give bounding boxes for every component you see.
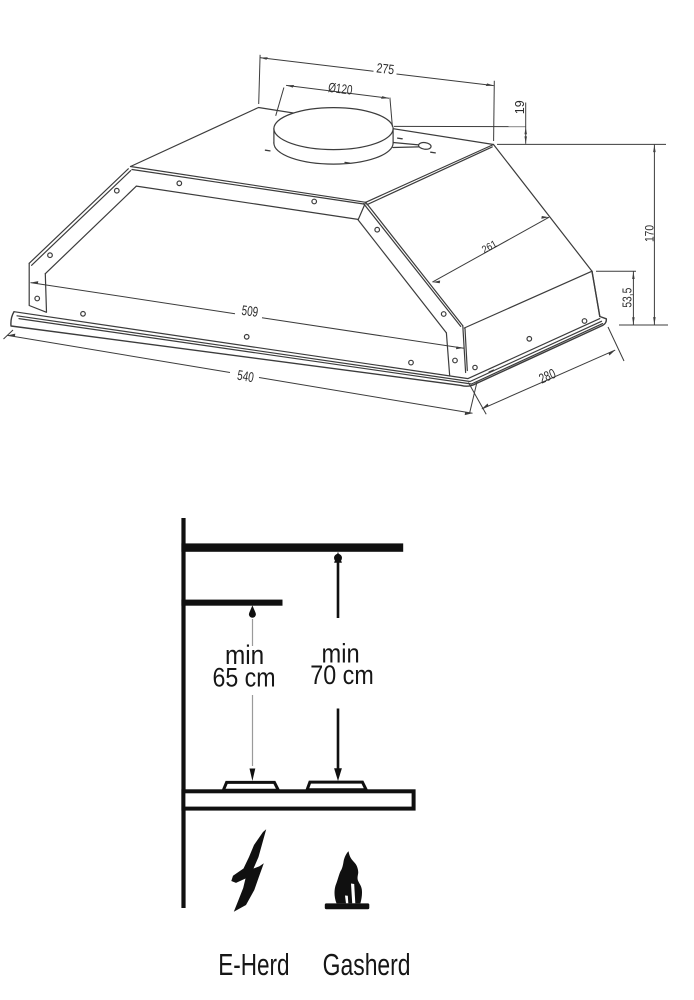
svg-text:275: 275 xyxy=(376,60,395,77)
svg-text:53,5: 53,5 xyxy=(620,288,634,308)
svg-text:19: 19 xyxy=(513,100,527,114)
svg-text:509: 509 xyxy=(241,302,260,320)
svg-text:Gasherd: Gasherd xyxy=(323,947,411,982)
svg-text:540: 540 xyxy=(236,367,255,386)
svg-text:E-Herd: E-Herd xyxy=(218,947,289,982)
svg-text:70 cm: 70 cm xyxy=(310,660,373,690)
svg-text:65 cm: 65 cm xyxy=(212,663,275,693)
svg-text:Ø120: Ø120 xyxy=(327,80,353,98)
svg-text:170: 170 xyxy=(643,225,657,242)
